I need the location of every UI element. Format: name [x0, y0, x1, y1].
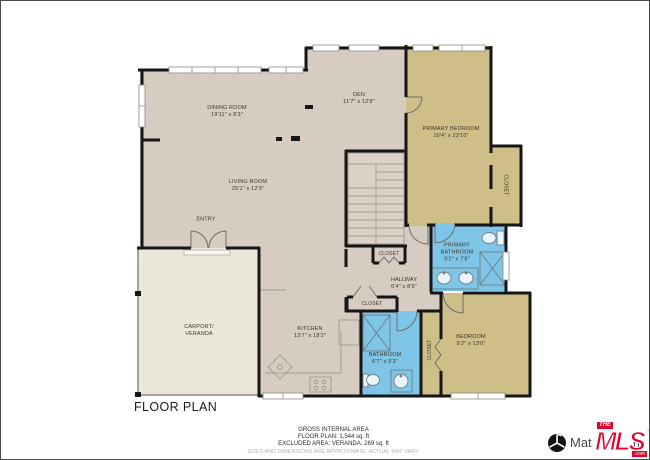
room-name: CLOSET	[502, 175, 509, 196]
room-dims: 13'7" x 18'2"	[294, 333, 326, 340]
room-dims: 19'11" x 8'3"	[207, 112, 247, 119]
window	[313, 45, 339, 51]
floor-plan-page: DINING ROOM 19'11" x 8'3" DEN 11'7" x 12…	[0, 0, 650, 460]
room-label-primary-bathroom: PRIMARY BATHROOM 9'2" x 7'8"	[435, 242, 479, 263]
room-label-hall-closet-top: CLOSET	[379, 251, 400, 258]
room-name: LIVING ROOM	[229, 179, 267, 186]
toilet-icon	[497, 231, 504, 245]
room-label-primary-bedroom: PRIMARY BEDROOM 10'4" x 23'10"	[422, 126, 479, 140]
room-dims: 6'4" x 8'9"	[391, 284, 417, 291]
room-name: ENTRY	[196, 216, 215, 223]
mls-trademark: ™	[646, 429, 650, 435]
branding-logos: Mat rt MLS THE .com ™	[547, 422, 649, 460]
area-excluded: EXCLUDED AREA: VERANDA: 269 sq. ft	[241, 441, 426, 448]
room-name: PRIMARY BATHROOM	[435, 242, 479, 256]
matterport-icon	[547, 433, 567, 453]
room-label-bathroom: BATHROOM 6'7" x 9'3"	[369, 352, 402, 366]
window	[349, 45, 379, 51]
room-dims: 10'4" x 23'10"	[422, 133, 479, 140]
staircase	[348, 153, 404, 246]
room-label-living-room: LIVING ROOM 25'1" x 12'9"	[229, 179, 267, 193]
window	[413, 45, 433, 51]
room-dims: 11'7" x 12'8"	[343, 99, 375, 106]
room-dims: 25'1" x 12'9"	[229, 186, 267, 193]
room-name: CLOSET	[379, 251, 400, 258]
room-label-hallway: HALLWAY 6'4" x 8'9"	[391, 277, 417, 291]
room-name: HALLWAY	[391, 277, 417, 284]
room-label-carport-veranda: CARPORT/ VERANDA	[182, 324, 216, 338]
room-label-dining-room: DINING ROOM 19'11" x 8'3"	[207, 105, 247, 119]
room-dims: 6'7" x 9'3"	[369, 359, 402, 366]
disclaimer-text: SIZES AND DIMENSIONS ARE APPROXIMATE, AC…	[241, 449, 426, 456]
room-name: BEDROOM	[456, 334, 485, 341]
room-label-bedroom: BEDROOM 9'2" x 13'0"	[456, 334, 485, 348]
room-dims: 9'2" x 7'8"	[435, 257, 479, 264]
room-name: KITCHEN	[294, 326, 326, 333]
room-label-den: DEN 11'7" x 12'8"	[343, 92, 375, 106]
area-floorplan-total: FLOOR PLAN: 1,544 sq. ft	[241, 434, 426, 441]
room-name: PRIMARY BEDROOM	[422, 126, 479, 133]
area-summary: GROSS INTERNAL AREA FLOOR PLAN: 1,544 sq…	[241, 427, 426, 456]
room-dims: 9'2" x 13'0"	[456, 341, 485, 348]
room-label-entry: ENTRY	[196, 216, 215, 223]
room-name: DEN	[343, 92, 375, 99]
window	[503, 252, 509, 280]
floor-plan-drawing	[1, 1, 650, 460]
room-name: BATHROOM	[369, 352, 402, 359]
room-label-hall-closet-bottom: CLOSET	[362, 301, 383, 308]
room-label-primary-closet: CLOSET	[502, 175, 509, 196]
matterport-wordmark-prefix: Mat	[570, 435, 592, 450]
room-label-bedroom-closet: CLOSET	[427, 340, 434, 361]
mls-com-badge: .com	[632, 451, 647, 457]
page-title: FLOOR PLAN	[134, 400, 217, 414]
room-name: CARPORT/ VERANDA	[182, 324, 216, 338]
the-mls-logo: MLS THE .com ™	[595, 422, 649, 460]
area-heading: GROSS INTERNAL AREA	[241, 427, 426, 434]
room-name: CLOSET	[362, 301, 383, 308]
room-name: CLOSET	[427, 340, 434, 361]
mls-the-badge: THE	[597, 422, 613, 429]
room-name: DINING ROOM	[207, 105, 247, 112]
room-label-kitchen: KITCHEN 13'7" x 18'2"	[294, 326, 326, 340]
